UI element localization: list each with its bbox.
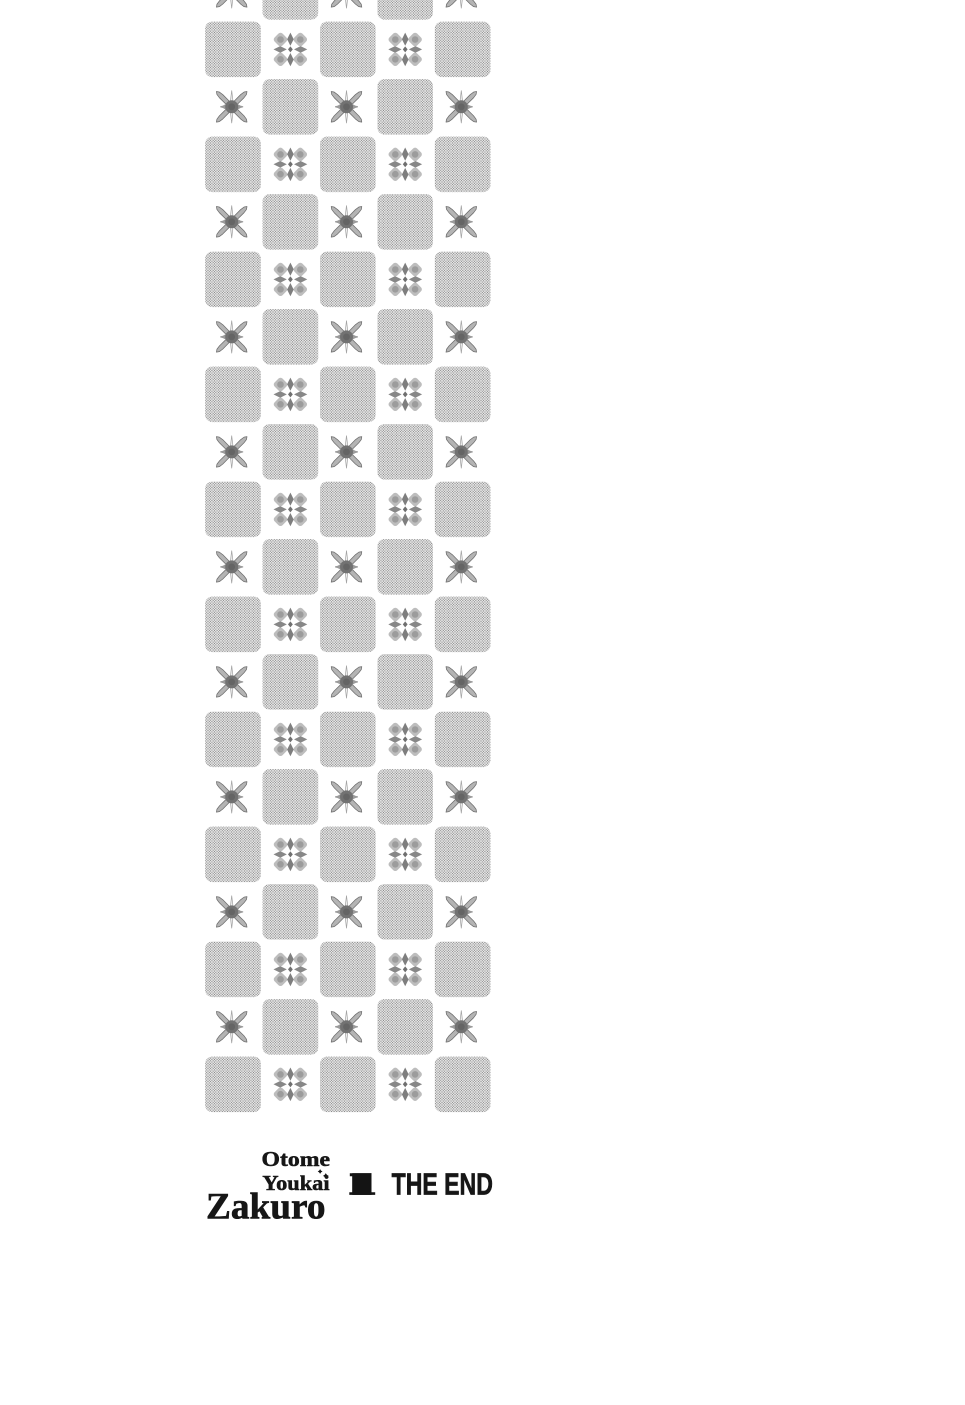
svg-text:THE END: THE END — [392, 1167, 493, 1202]
svg-text:Zakuro: Zakuro — [206, 1186, 326, 1227]
svg-text:Otome: Otome — [262, 1147, 331, 1171]
